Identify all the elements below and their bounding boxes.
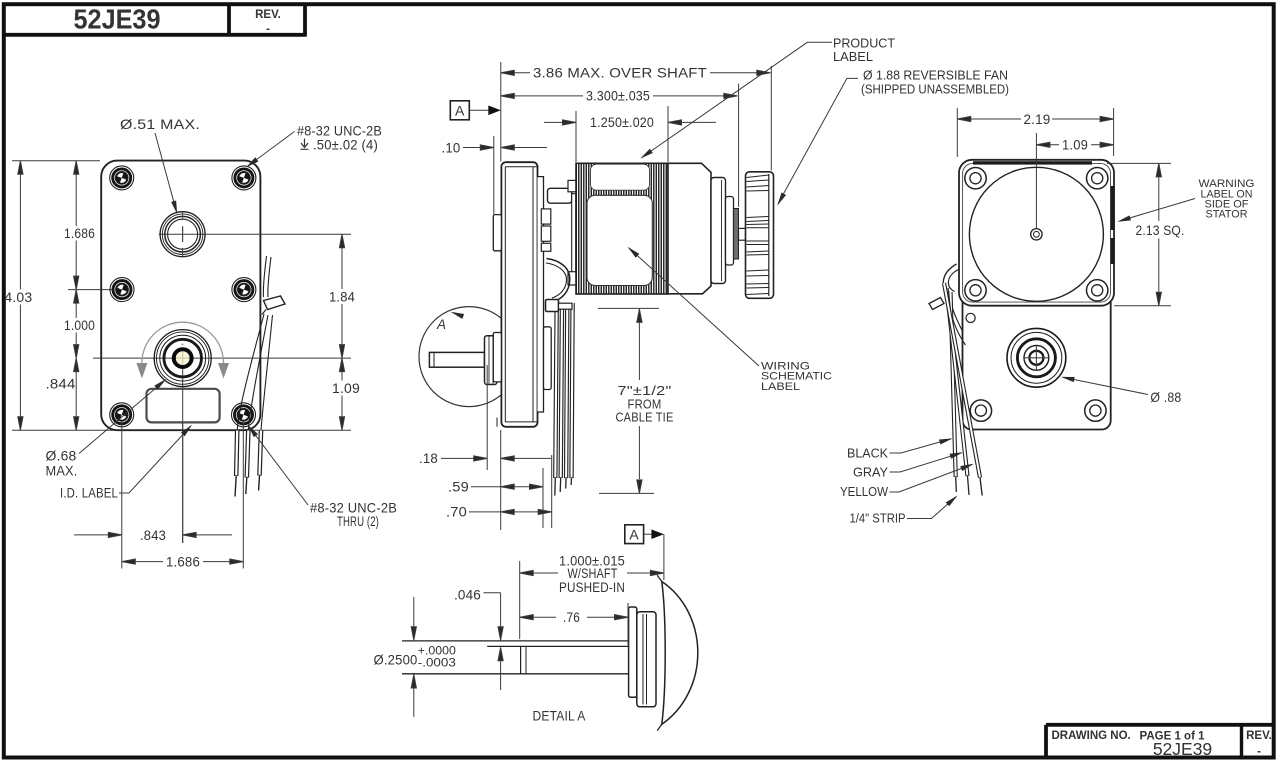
svg-text:A: A [455,103,465,119]
svg-text:52JE39: 52JE39 [1153,739,1212,759]
svg-text:CABLE TIE: CABLE TIE [616,410,674,424]
svg-text:Ø.51 MAX.: Ø.51 MAX. [120,116,200,132]
svg-text:-: - [1257,746,1261,758]
svg-text:1.250±.020: 1.250±.020 [590,114,654,130]
svg-text:A: A [629,527,639,543]
svg-text:1.686: 1.686 [64,225,95,241]
svg-text:7"±1/2": 7"±1/2" [618,384,672,398]
svg-text:THRU (2): THRU (2) [337,513,379,529]
svg-text:Ø.68: Ø.68 [46,447,77,463]
svg-text:A: A [436,317,446,332]
svg-text:Ø .88: Ø .88 [1150,389,1181,405]
svg-text:.50±.02 (4): .50±.02 (4) [313,136,378,152]
svg-text:4.03: 4.03 [4,289,32,305]
svg-text:Ø.2500: Ø.2500 [374,651,418,667]
svg-text:1.686: 1.686 [166,554,200,570]
svg-text:DETAIL A: DETAIL A [533,707,586,723]
svg-text:.59: .59 [448,479,469,495]
svg-text:.18: .18 [419,450,438,466]
svg-text:3.86 MAX. OVER SHAFT: 3.86 MAX. OVER SHAFT [533,65,707,81]
svg-text:52JE39: 52JE39 [74,4,161,35]
svg-text:1.09: 1.09 [1062,137,1088,153]
svg-text:MAX.: MAX. [46,463,78,479]
svg-text:PUSHED-IN: PUSHED-IN [559,579,625,595]
svg-text:1.84: 1.84 [329,288,355,304]
svg-text:3.300±.035: 3.300±.035 [586,88,650,104]
svg-text:Ø 1.88 REVERSIBLE FAN: Ø 1.88 REVERSIBLE FAN [863,67,1008,82]
svg-text:LABEL: LABEL [833,49,873,64]
svg-text:BLACK: BLACK [847,445,888,460]
svg-text:FROM: FROM [628,397,662,411]
svg-text:.76: .76 [563,609,580,625]
svg-text:1.09: 1.09 [332,380,360,396]
svg-text:-: - [266,24,270,36]
svg-text:.70: .70 [446,504,467,520]
svg-text:REV.: REV. [255,9,281,21]
svg-text:.843: .843 [140,527,166,543]
svg-text:1.000: 1.000 [64,317,95,333]
svg-text:REV.: REV. [1246,730,1272,742]
svg-text:LABEL: LABEL [761,381,800,393]
svg-text:2.19: 2.19 [1024,111,1051,127]
svg-text:2.13 SQ.: 2.13 SQ. [1136,222,1185,238]
svg-text:PRODUCT: PRODUCT [833,35,895,50]
svg-text:.046: .046 [454,586,481,602]
svg-text:STATOR: STATOR [1206,209,1248,221]
svg-text:-.0003: -.0003 [418,655,456,669]
svg-text:DRAWING NO.: DRAWING NO. [1052,730,1131,742]
svg-text:.10: .10 [442,139,461,155]
svg-text:(SHIPPED UNASSEMBLED): (SHIPPED UNASSEMBLED) [861,81,1009,96]
svg-text:GRAY: GRAY [853,464,888,479]
svg-text:YELLOW: YELLOW [840,484,889,499]
svg-text:.844: .844 [46,376,76,392]
svg-text:I.D. LABEL: I.D. LABEL [60,485,118,501]
svg-text:1/4" STRIP: 1/4" STRIP [850,510,906,525]
